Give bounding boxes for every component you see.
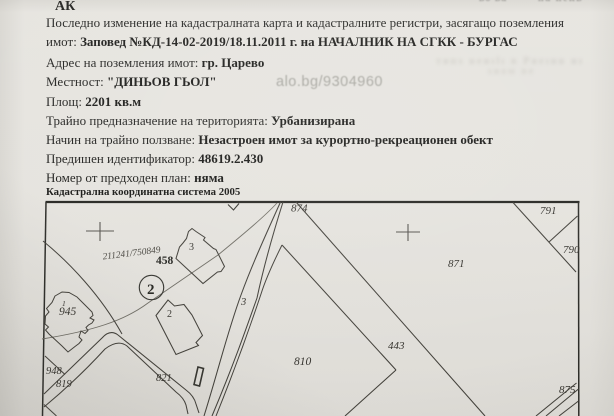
svg-text:791: 791 (540, 205, 557, 217)
svg-text:790: 790 (563, 244, 580, 256)
svg-text:2: 2 (147, 282, 155, 298)
svg-text:2: 2 (167, 309, 172, 320)
svg-text:871: 871 (448, 258, 465, 270)
svg-text:458: 458 (156, 255, 174, 267)
svg-text:948: 948 (46, 366, 63, 377)
svg-text:1: 1 (62, 299, 66, 308)
svg-text:3: 3 (189, 242, 194, 253)
svg-text:875: 875 (559, 384, 576, 396)
svg-text:821: 821 (156, 373, 172, 384)
svg-text:211241/750849: 211241/750849 (102, 245, 161, 262)
svg-text:810: 810 (294, 356, 312, 368)
svg-text:3: 3 (240, 297, 246, 308)
svg-text:819: 819 (56, 379, 73, 390)
svg-text:443: 443 (388, 340, 405, 352)
svg-text:874: 874 (291, 203, 308, 215)
